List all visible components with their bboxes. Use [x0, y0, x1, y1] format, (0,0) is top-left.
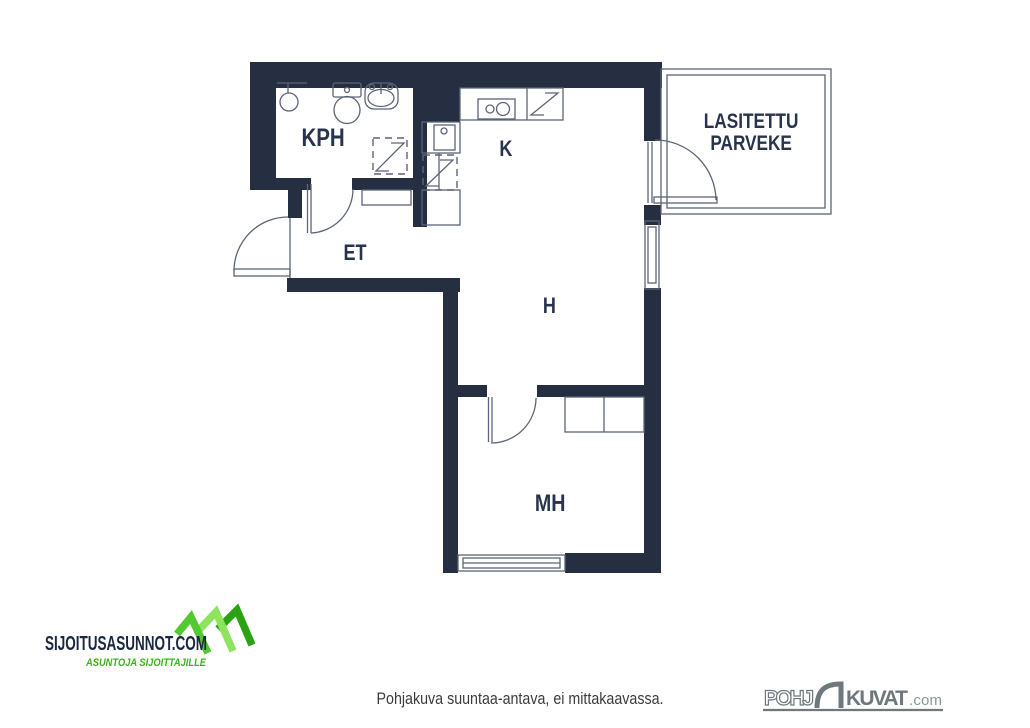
- washer-reservation-icon: [373, 138, 407, 174]
- kph-door: [308, 184, 354, 233]
- entrance-door-arc: [234, 217, 288, 271]
- logo-sijoitusasunnot: SIJOITUSASUNNOT.COM ASUNTOJA SIJOITTAJIL…: [45, 610, 252, 669]
- wall-mh-bottom: [565, 553, 647, 573]
- balcony-door: [648, 140, 717, 203]
- floor-plan-page: KPH K ET H MH LASITETTU PARVEKE SIJOITUS…: [0, 0, 1030, 728]
- pohjakuvat-part1: POHJ: [764, 687, 814, 710]
- room-label-et: ET: [344, 241, 368, 265]
- et-closet: [362, 190, 411, 205]
- balcony-label-line1: LASITETTU: [704, 111, 799, 134]
- kitchen-lower-counter: [422, 190, 460, 225]
- stove-icon: [531, 93, 558, 115]
- window-h: [645, 221, 659, 289]
- floor-plan-svg: KPH K ET H MH LASITETTU PARVEKE SIJOITUS…: [0, 0, 1030, 728]
- door-arc-icon: [817, 684, 841, 708]
- room-label-k: K: [499, 137, 512, 161]
- balcony-label-line2: PARVEKE: [710, 133, 792, 156]
- wall-divider-right: [537, 385, 644, 397]
- wall-kph-right: [413, 88, 427, 227]
- balcony-door-arc: [655, 140, 716, 200]
- room-label-mh: MH: [535, 489, 566, 516]
- wall-divider-left: [458, 385, 487, 397]
- wall-left-kph: [250, 62, 276, 190]
- kitchen-column: [422, 122, 460, 225]
- mh-wardrobe: [565, 397, 644, 432]
- window-h-inner: [648, 227, 656, 283]
- mh-door-arc: [491, 398, 536, 443]
- entrance-door: [234, 217, 290, 278]
- sijoitusasunnot-tagline: ASUNTOJA SIJOITTAJILLE: [85, 657, 206, 669]
- pohjakuvat-part2: KUVAT: [846, 687, 908, 710]
- dishwasher-reservation-icon: [423, 155, 457, 190]
- small-sink-icon: [434, 125, 455, 150]
- wall-entrance-stub: [288, 190, 302, 218]
- wall-right-top: [644, 62, 661, 141]
- disclaimer-text: Pohjakuva suuntaa-antava, ei mittakaavas…: [377, 689, 664, 708]
- entrance-door-leaf: [234, 269, 290, 276]
- toilet-icon: [333, 83, 361, 124]
- wall-et-bottom: [287, 278, 460, 292]
- wall-top: [250, 62, 662, 88]
- wall-left-h-mh: [443, 278, 458, 573]
- pohjakuvat-suffix: .com: [909, 692, 942, 709]
- balcony-door-leaf: [654, 197, 717, 203]
- room-label-kph: KPH: [301, 123, 344, 151]
- room-label-h: H: [543, 294, 556, 318]
- wall-kph-bottom-left: [250, 178, 311, 190]
- sijoitusasunnot-title: SIJOITUSASUNNOT.COM: [45, 633, 207, 655]
- wall-right-lower: [644, 288, 661, 573]
- logo-pohjakuvat: POHJ KUVAT .com: [763, 684, 943, 710]
- mh-door: [489, 397, 537, 443]
- kph-door-arc: [311, 189, 353, 233]
- washbasin-icon: [365, 83, 398, 109]
